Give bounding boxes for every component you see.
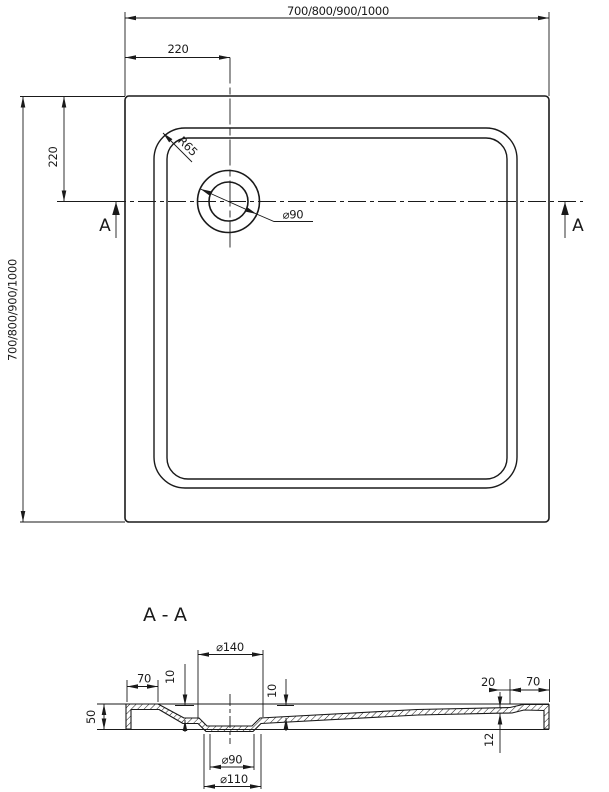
basin-rim-outer [154,128,517,488]
dim-drain-offset-x: 220 [125,42,230,58]
drain-diameter-label: ⌀90 [283,208,304,222]
edge-height-label: 50 [84,710,98,724]
basin-rim-inner [167,138,507,479]
dim-edge-height: 50 [84,704,126,730]
dim-flange-diameter: ⌀140 [198,640,263,719]
dim-drain-hole: ⌀90 [210,734,254,770]
drain-hole-label: ⌀90 [222,753,243,767]
section-title: A-A [143,604,193,626]
dim-floor-thickness: 12 [482,692,500,753]
step-width-label: 20 [481,675,495,689]
rim-width-left-label: 70 [137,672,151,686]
shower-tray-drawing: 700/800/900/1000 220 700/800/900/1000 22… [0,0,609,792]
tray-cross-section [126,704,549,732]
rim-drop-left-label: 10 [163,670,177,684]
drain-recess-label: ⌀110 [220,772,248,786]
dim-drain-offset-y: 220 [46,97,109,202]
section-marker-left: A [99,202,120,238]
rim-width-right-label: 70 [526,675,540,689]
overall-width-label: 700/800/900/1000 [287,4,389,18]
technical-drawing-sheet: 700/800/900/1000 220 700/800/900/1000 22… [0,0,609,792]
plan-view: 700/800/900/1000 220 700/800/900/1000 22… [6,4,585,522]
dim-overall-width: 700/800/900/1000 [125,4,549,96]
section-marker-right: A [561,202,584,238]
section-letter-left: A [99,216,111,236]
tray-outer-edge [125,96,549,522]
overall-height-label: 700/800/900/1000 [6,259,20,361]
section-letter-right: A [572,216,584,236]
dim-step-and-rim-right: 20 70 [481,675,550,705]
drain-offset-y-label: 220 [46,146,60,167]
floor-thickness-label: 12 [482,733,496,747]
dim-overall-height: 700/800/900/1000 [6,97,126,523]
dim-rim-width-left: 70 [127,672,158,703]
drain-offset-x-label: 220 [167,42,188,56]
recess-drop-right-label: 10 [265,684,279,698]
section-view: A-A ⌀140 70 10 [84,604,550,789]
flange-diameter-label: ⌀140 [216,640,244,654]
